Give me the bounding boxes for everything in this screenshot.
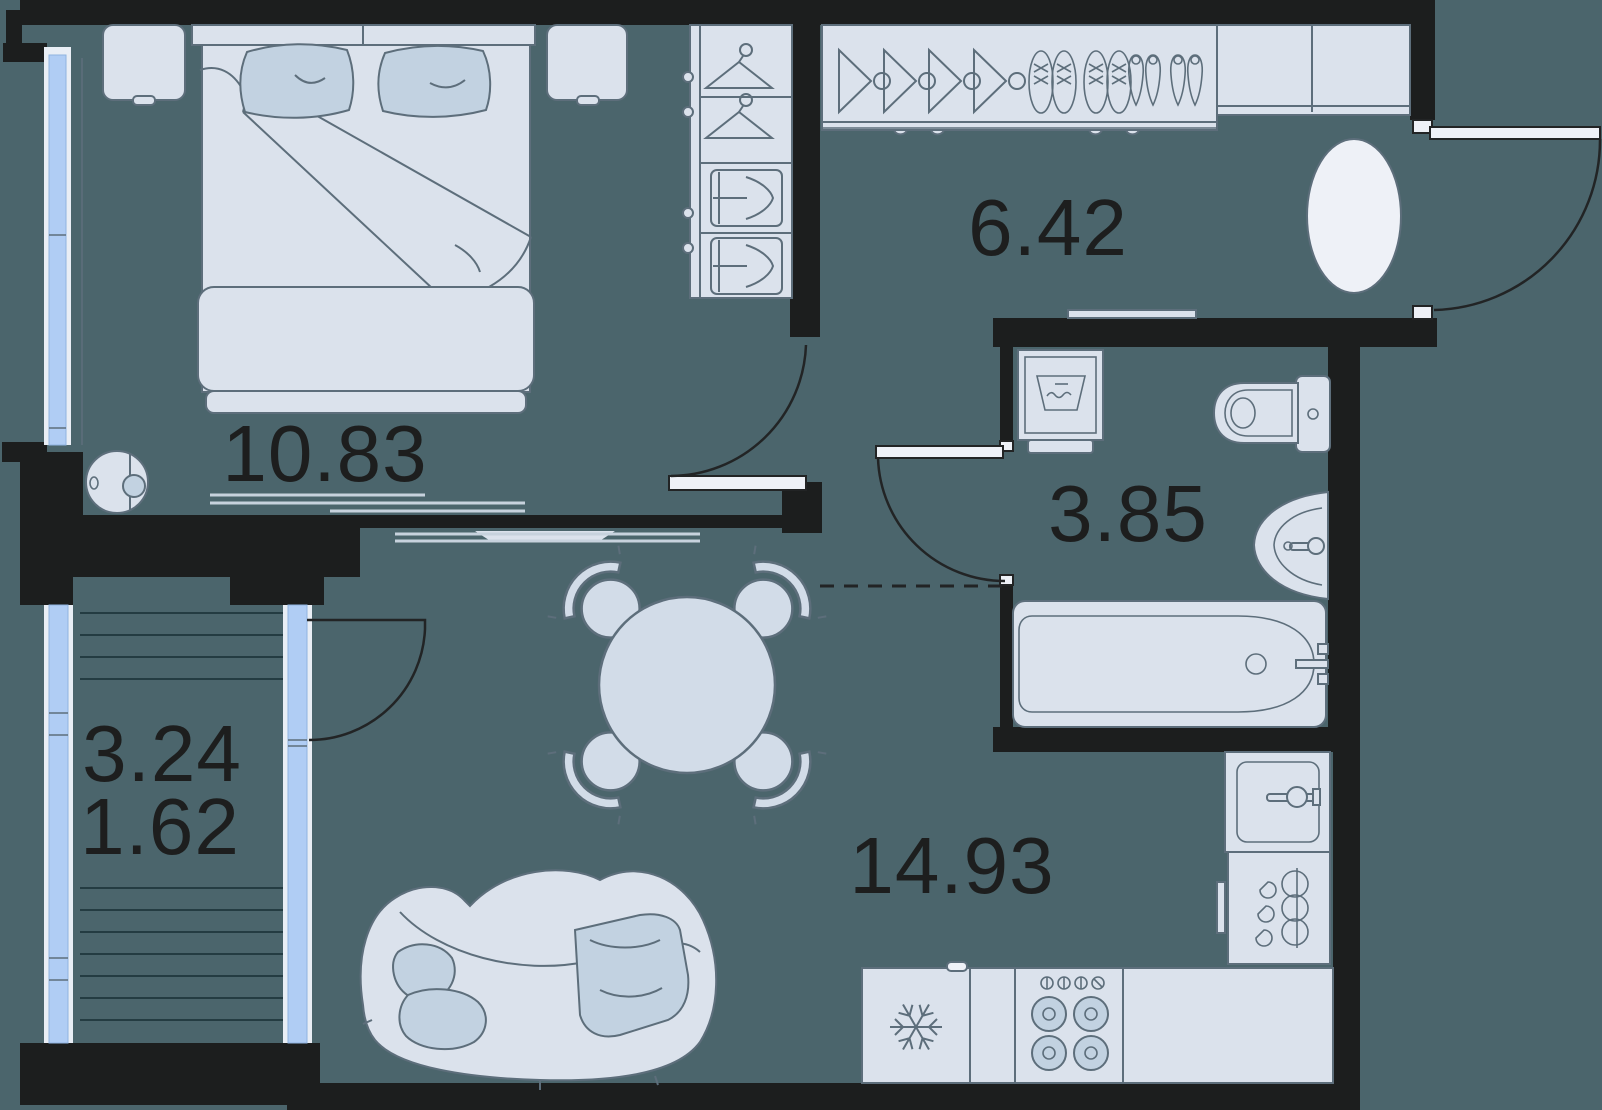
double-bed — [192, 25, 535, 413]
hallway: 6.42 — [822, 25, 1600, 319]
nightstand-right — [547, 25, 627, 105]
kitchen-dish-unit — [1217, 852, 1330, 964]
bathtub — [1013, 601, 1328, 727]
bathroom-door — [876, 441, 1013, 585]
sofa-blanket — [575, 914, 688, 1036]
robot-vacuum — [86, 451, 148, 513]
room-label-hallway: 6.42 — [968, 183, 1128, 272]
balcony-door — [307, 620, 425, 740]
bedroom-window — [44, 47, 82, 445]
room-label-living-kitchen: 14.93 — [849, 821, 1054, 910]
dining-set — [542, 540, 832, 830]
floor-plan: 10.83 — [0, 0, 1602, 1110]
entry-rug — [1307, 139, 1401, 293]
room-label-bedroom: 10.83 — [222, 409, 427, 498]
room-label-balcony-reduced: 1.62 — [80, 782, 240, 871]
pillow-right — [378, 46, 490, 117]
entry-cabinet — [1217, 25, 1410, 115]
bathroom: 3.85 — [876, 350, 1330, 727]
sofa — [361, 870, 717, 1090]
hallway-closet — [822, 25, 1217, 134]
console-strip — [395, 531, 700, 542]
drawer-folded-clothes — [711, 170, 782, 226]
entrance-door — [1413, 120, 1600, 319]
balcony-window-left — [44, 605, 73, 1043]
balcony-window-right — [283, 605, 312, 1043]
kitchen-sink-unit — [1225, 752, 1330, 852]
room-label-bathroom: 3.85 — [1048, 469, 1208, 558]
bathroom-sink — [1254, 492, 1328, 599]
round-table — [599, 597, 775, 773]
bedroom: 10.83 — [44, 25, 806, 513]
drawer-folded-clothes — [711, 238, 782, 294]
wardrobe — [683, 25, 792, 298]
kitchen-counter — [862, 962, 1333, 1083]
pillow-left — [240, 44, 353, 118]
washing-machine — [1018, 350, 1103, 453]
toilet — [1214, 376, 1330, 452]
bathroom-shelf-strip — [1068, 310, 1196, 318]
nightstand-left — [103, 25, 185, 105]
bedroom-door — [669, 345, 806, 490]
floor-plan-canvas: 10.83 — [0, 0, 1602, 1110]
sofa-pillow — [399, 989, 485, 1049]
